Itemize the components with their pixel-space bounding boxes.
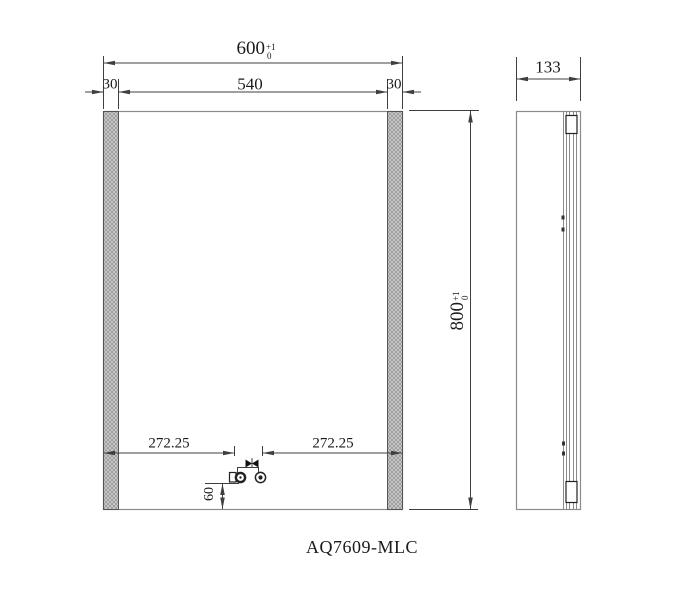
- dim-fixture-height-label: 60: [203, 487, 217, 501]
- hinge-top: [566, 116, 577, 134]
- screw-mark: [562, 216, 565, 220]
- dim-right-offset-label: 272.25: [312, 437, 353, 452]
- led-strip-left: [104, 112, 119, 510]
- technical-drawing-canvas: 600+10 540 30 30 133 800+10 272.25 272.2…: [0, 0, 678, 600]
- screw-mark: [562, 452, 565, 456]
- dim-right-margin-label: 30: [387, 78, 402, 93]
- dim-height-value: 800: [447, 302, 468, 331]
- led-strip-right: [388, 112, 403, 510]
- dim-total-width-value: 600: [236, 38, 265, 59]
- dim-left-offset-label: 272.25: [148, 437, 189, 452]
- screw-mark: [562, 228, 565, 232]
- tolerance-stack: +10: [266, 43, 276, 61]
- screw-mark: [562, 442, 565, 446]
- model-number-label: AQ7609-MLC: [306, 538, 418, 556]
- dim-total-width-label: 600+10: [236, 39, 275, 61]
- dim-depth-label: 133: [535, 59, 561, 76]
- tolerance-stack: +10: [452, 291, 470, 301]
- side-view-outline: [517, 112, 581, 510]
- dim-height-label: 800+10: [448, 291, 470, 330]
- hinge-bottom: [566, 482, 577, 503]
- dim-left-margin-label: 30: [103, 78, 118, 93]
- dim-inner-width-label: 540: [237, 76, 263, 93]
